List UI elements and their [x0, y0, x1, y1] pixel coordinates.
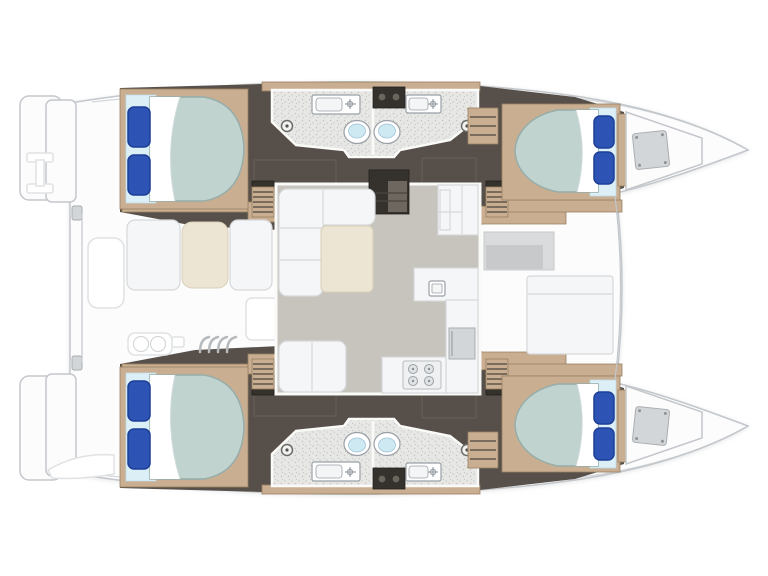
recessed-locker-inset — [486, 245, 543, 269]
sun-pad — [527, 276, 613, 354]
cockpit-table — [182, 222, 228, 288]
galley-sink — [429, 281, 445, 296]
salon — [276, 170, 480, 394]
aft-bench — [279, 341, 346, 392]
coffee-table — [321, 226, 373, 292]
cockpit-bench-right — [230, 220, 272, 290]
cockpit-bench-left — [127, 220, 180, 290]
galley-counter-top — [414, 268, 478, 301]
cockpit-side-seat — [88, 238, 124, 308]
floorplan-canvas: Top-down interior floor plan of a four-c… — [0, 0, 768, 576]
refrigerator — [449, 328, 475, 359]
four-burner-stove — [403, 361, 441, 389]
cockpit-module — [246, 298, 278, 340]
catamaran-floorplan: Top-down interior floor plan of a four-c… — [0, 0, 768, 576]
nav-cabinet — [438, 185, 478, 235]
